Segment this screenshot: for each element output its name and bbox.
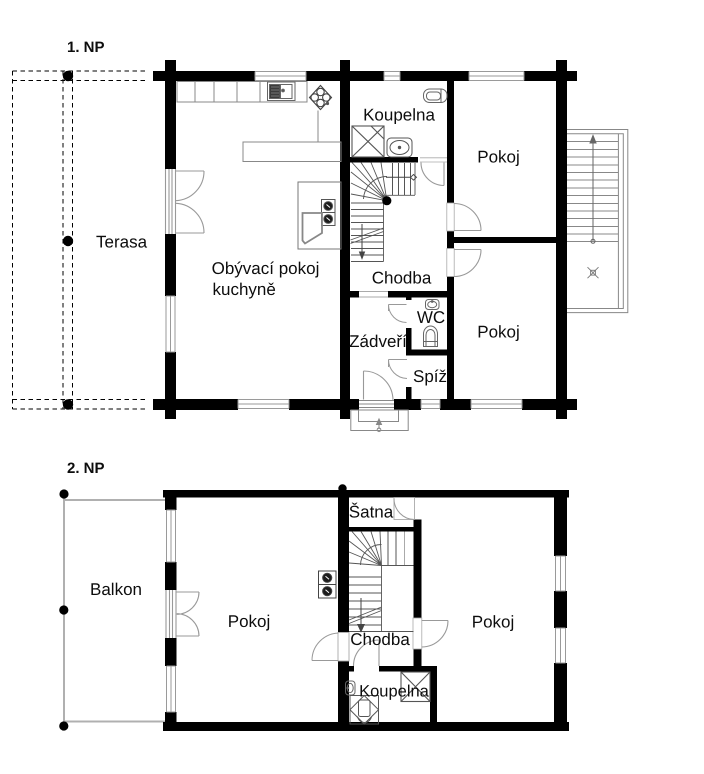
svg-text:Pokoj: Pokoj [472, 613, 515, 632]
svg-text:Spíž: Spíž [413, 367, 447, 386]
svg-text:Zádveří: Zádveří [349, 332, 407, 351]
svg-text:2. NP: 2. NP [67, 460, 105, 477]
svg-text:Koupelna: Koupelna [363, 106, 435, 125]
svg-text:kuchyně: kuchyně [213, 280, 276, 299]
svg-text:WC: WC [417, 308, 445, 327]
svg-text:Terasa: Terasa [96, 233, 148, 252]
svg-text:Šatna: Šatna [349, 503, 394, 522]
svg-text:1. NP: 1. NP [67, 39, 105, 56]
svg-text:Pokoj: Pokoj [477, 323, 520, 342]
svg-text:Pokoj: Pokoj [228, 612, 271, 631]
svg-text:Koupelna: Koupelna [359, 683, 430, 701]
svg-text:Chodba: Chodba [372, 269, 432, 288]
svg-text:Pokoj: Pokoj [477, 148, 520, 167]
svg-text:Balkon: Balkon [90, 580, 142, 599]
svg-text:Chodba: Chodba [350, 630, 410, 649]
svg-text:Obývací pokoj: Obývací pokoj [212, 259, 320, 278]
